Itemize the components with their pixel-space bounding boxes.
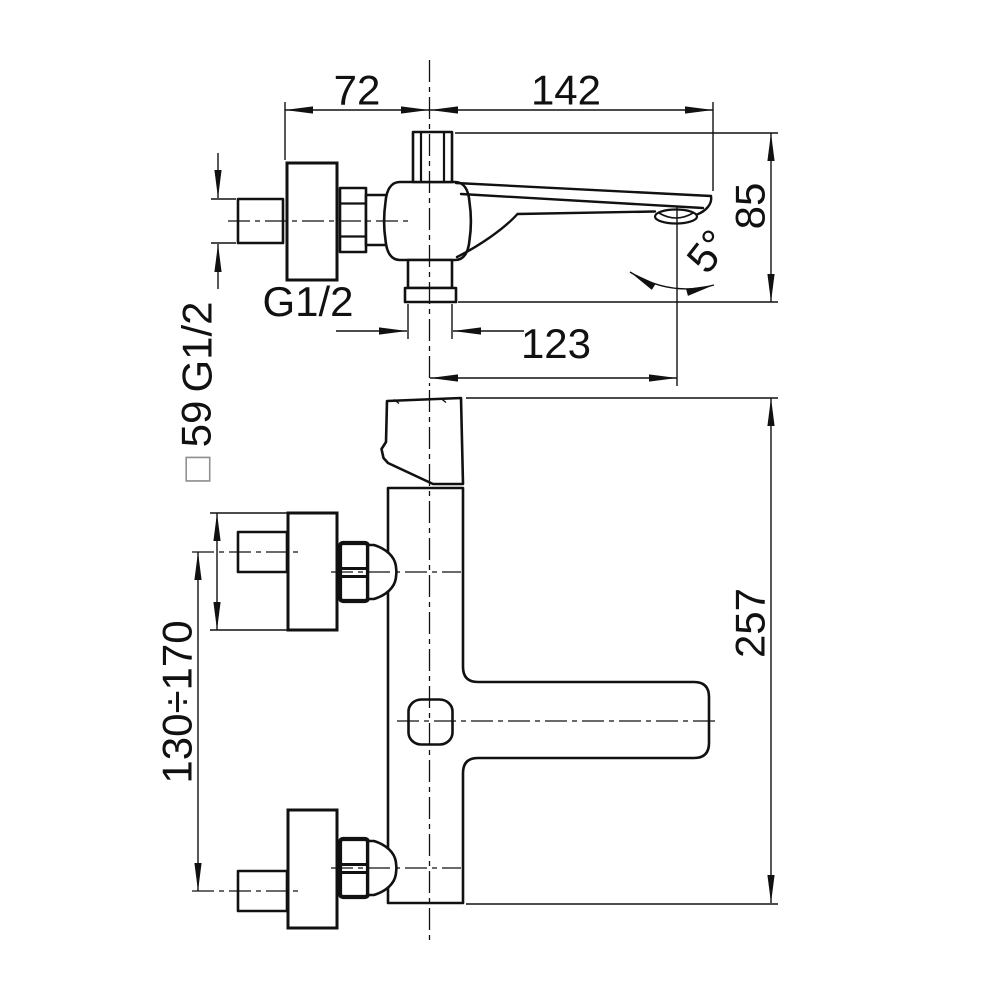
top-view (238, 132, 711, 302)
dimensions-side-view: 257 130÷170 59 □ (154, 398, 778, 904)
lever-handle-side-view (382, 398, 464, 484)
spout-top-edge (456, 183, 711, 196)
dimension-label-123: 123 (521, 320, 591, 367)
side-view (238, 398, 709, 928)
bath-mixer-dimension-drawing: 72 142 85 G1/2 G1/2 123 5° 257 130÷170 (0, 0, 1000, 1000)
dimension-label-142: 142 (531, 67, 601, 114)
mixer-body-side-view (388, 488, 709, 903)
diverter-knob (409, 700, 453, 745)
spout-outlet-aerator (655, 210, 697, 224)
dimension-label-257: 257 (727, 588, 774, 658)
spout-underside (457, 212, 655, 258)
angle-arc-5deg (630, 272, 714, 289)
handle-stem-top-view (413, 132, 452, 182)
mounting-nut-top-view (340, 188, 366, 252)
escutcheon-plate-top-inlet (288, 513, 337, 630)
dimension-label-85: 85 (727, 183, 774, 230)
dimension-label-59: 59 (173, 401, 220, 448)
thread-label-inlet: G1/2 (174, 301, 221, 392)
technical-drawing-canvas: 72 142 85 G1/2 G1/2 123 5° 257 130÷170 (0, 0, 1000, 1000)
spout-upper-face-edge (461, 194, 703, 208)
outlet-collar-top-view (405, 288, 456, 302)
thread-label-outlet: G1/2 (262, 278, 353, 325)
dimension-label-130-170: 130÷170 (154, 620, 201, 783)
escutcheon-plate-bottom-inlet (288, 810, 337, 928)
spout-tip-curve (697, 196, 711, 215)
dimension-label-72: 72 (334, 67, 381, 114)
square-symbol: □ (173, 456, 220, 482)
